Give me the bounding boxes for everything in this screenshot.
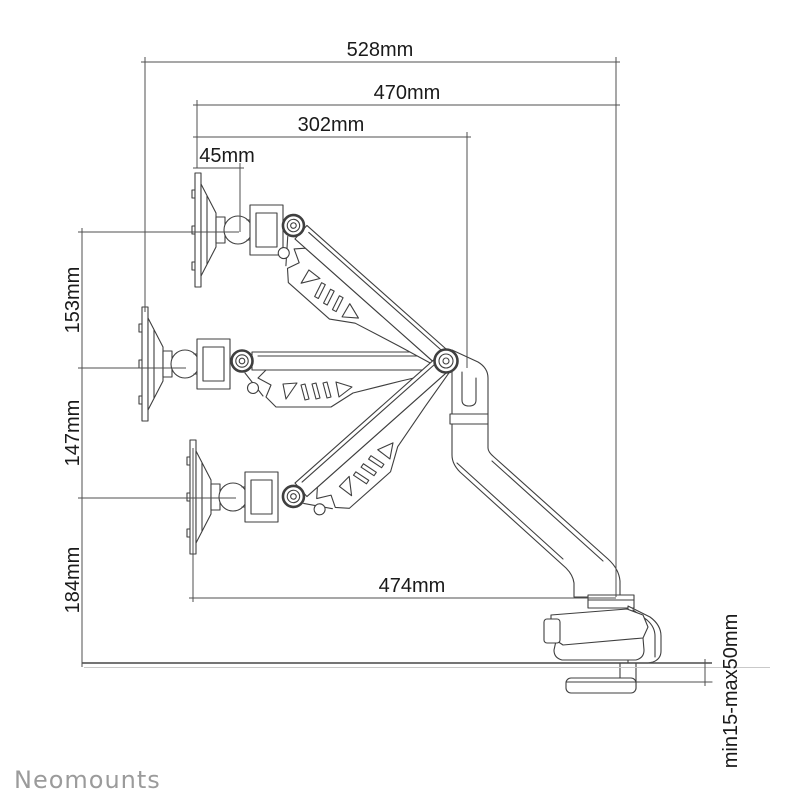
dim-upper-arm-302: 302mm	[193, 114, 471, 137]
elbow-head-and-lower-arm	[450, 350, 634, 608]
dim-desk-thickness: min15-max50mm	[705, 614, 742, 768]
dim-470-label: 470mm	[374, 82, 441, 104]
desk-mount-base	[544, 606, 661, 663]
vesa-mount-bottom	[187, 440, 278, 554]
neomounts-logo: Neomounts	[14, 766, 161, 794]
dim-vertical-chain: 153mm 147mm 184mm	[62, 228, 84, 667]
dim-45-label: 45mm	[199, 145, 255, 167]
dim-vesa-offset-45: 45mm	[193, 145, 255, 168]
dim-153-label: 153mm	[62, 267, 84, 334]
dim-184-label: 184mm	[62, 547, 84, 614]
dim-arm-reach-470: 470mm	[193, 82, 620, 105]
vesa-mount-middle	[139, 307, 230, 421]
dim-147-label: 147mm	[62, 400, 84, 467]
monitor-arm-drawing	[82, 173, 770, 693]
monitor-arm-dimension-diagram: 528mm 470mm 302mm 45mm 153mm 147mm 184mm…	[0, 0, 800, 800]
dim-474-label: 474mm	[379, 575, 446, 597]
dim-302-label: 302mm	[298, 114, 365, 136]
dim-clamp-range-label: min15-max50mm	[720, 614, 742, 768]
vesa-mount-top	[192, 173, 283, 287]
dim-total-reach-528: 528mm	[141, 39, 620, 62]
elbow-pivot-bolt	[435, 350, 458, 373]
technical-drawing-page: 528mm 470mm 302mm 45mm 153mm 147mm 184mm…	[0, 0, 800, 800]
desk-surface	[82, 663, 770, 682]
dim-528-label: 528mm	[347, 39, 414, 61]
dim-low-position-474: 474mm	[189, 575, 616, 598]
